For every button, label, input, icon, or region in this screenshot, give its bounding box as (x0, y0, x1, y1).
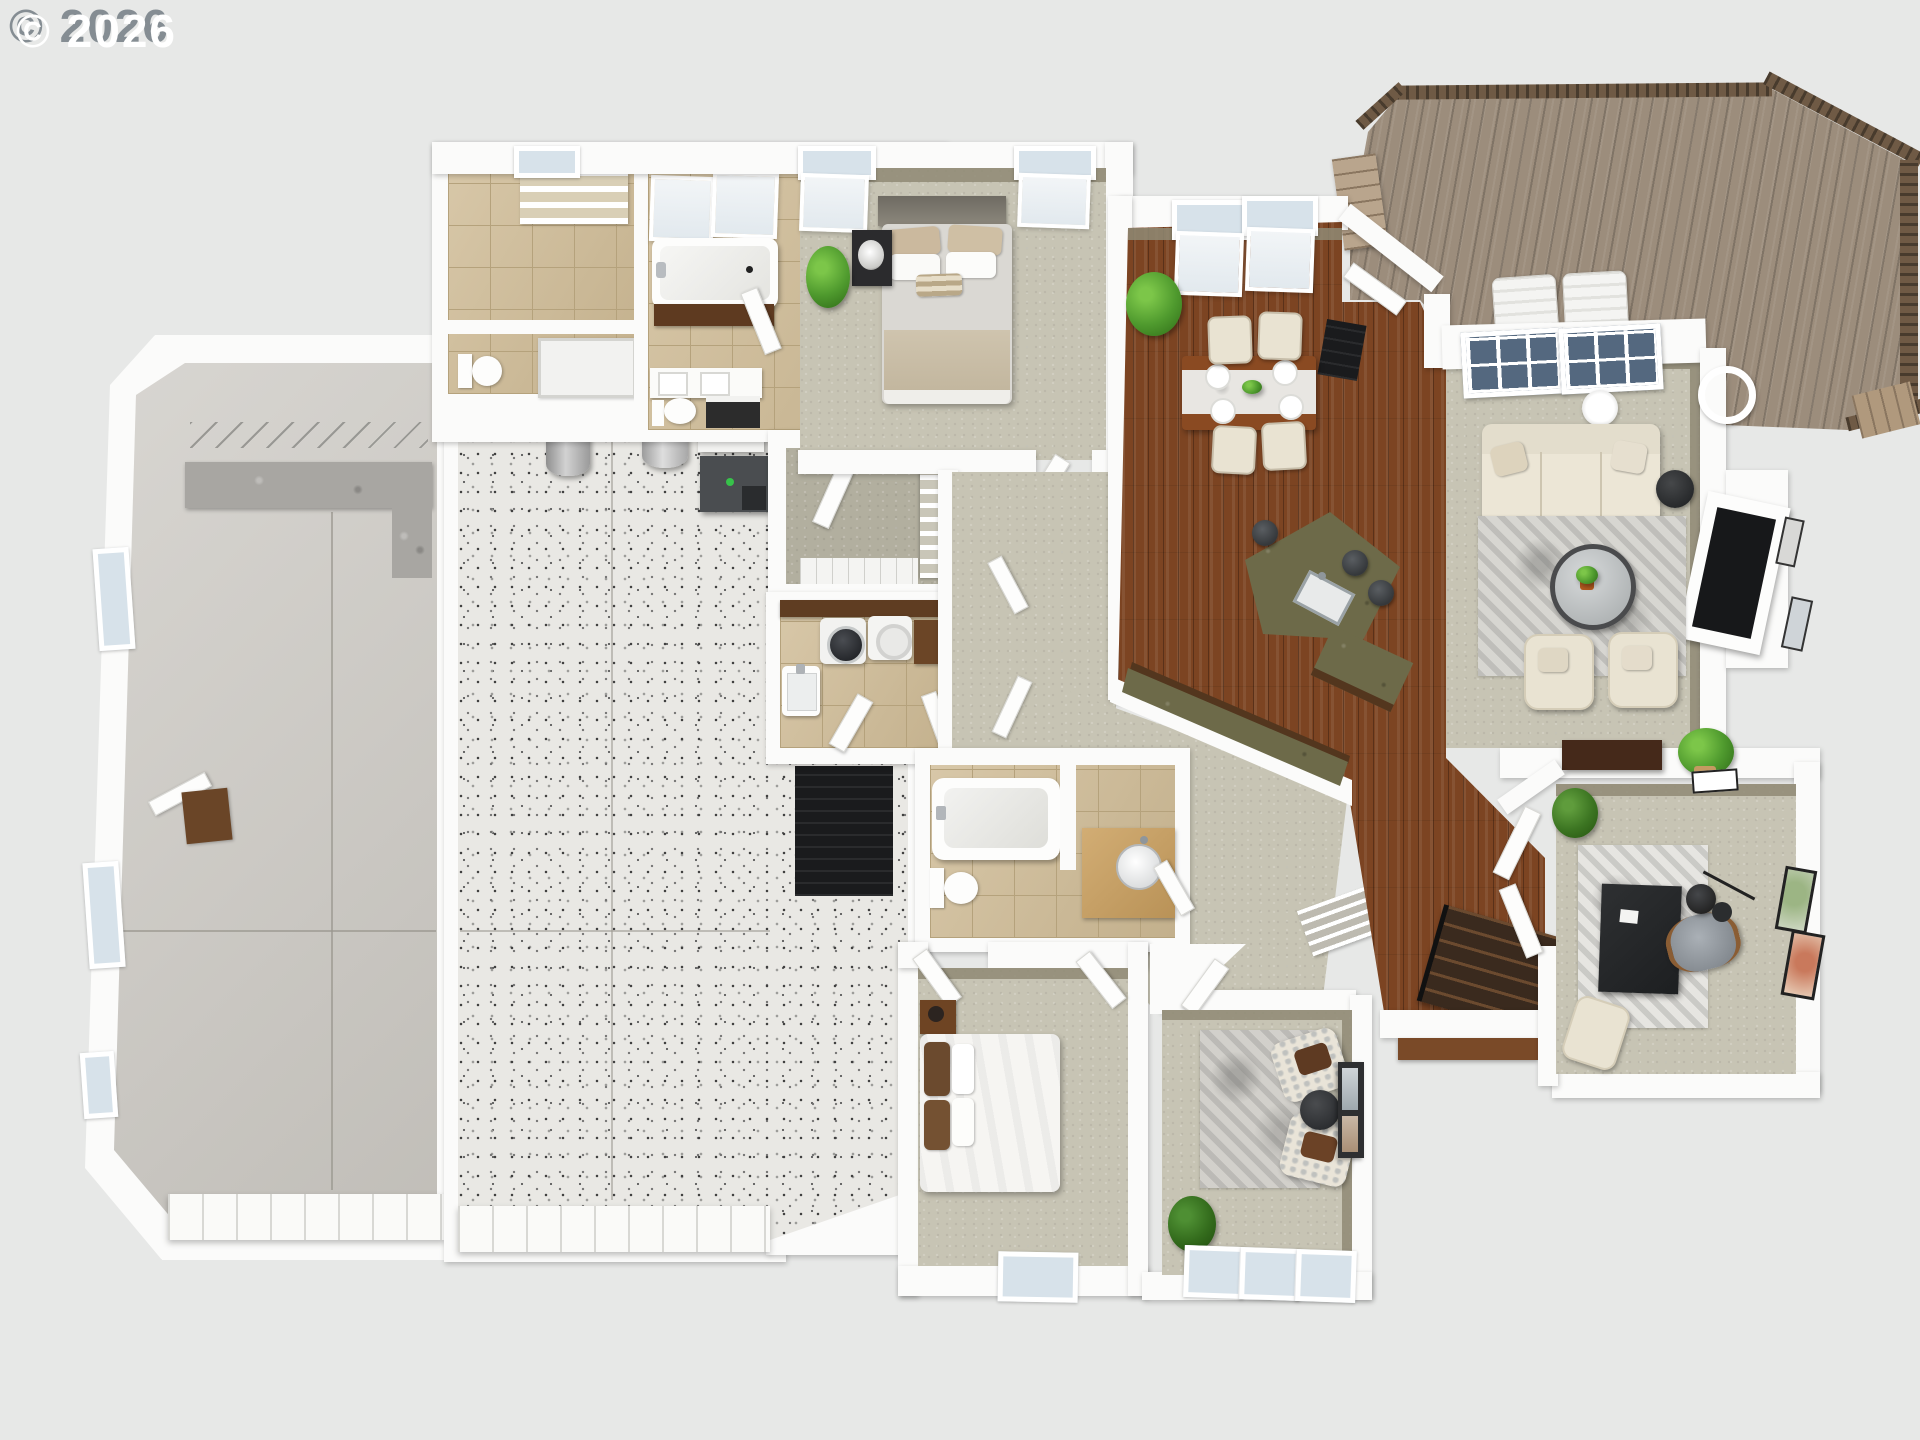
master-table-lamp (858, 240, 884, 270)
floor-plan-render: © 2026 (0, 0, 1920, 1440)
armchair-1-pillow (1538, 648, 1568, 672)
living-picture-window-2 (1558, 323, 1663, 394)
console-table (1562, 740, 1662, 770)
bedroom2-brown-pillow-2 (924, 1100, 950, 1150)
office-bottom-wall (1552, 1072, 1820, 1098)
garage-workbench-return (392, 508, 432, 578)
office-north-art (1691, 768, 1738, 793)
dining-chair-2 (1257, 311, 1303, 361)
desk-paper (1619, 909, 1638, 924)
black-side-table (1656, 470, 1694, 508)
arc-lamp-head-2 (1712, 902, 1732, 922)
laundry-counter (780, 600, 962, 617)
hvac-indicator-light (726, 478, 734, 486)
sofa-pillow-2 (1610, 439, 1649, 474)
place-setting-2 (1272, 360, 1298, 386)
office-fern (1552, 788, 1598, 838)
vanity-sink-1 (658, 372, 688, 396)
garage-doormat (181, 788, 232, 845)
utility-sink-basin (787, 673, 817, 711)
garage-window-2 (82, 861, 125, 969)
workshop-joint-h (460, 930, 770, 932)
garage-door-panel (168, 1194, 445, 1240)
living-picture-window-1 (1460, 327, 1565, 398)
bedroom2-top-wall-mid (988, 942, 1148, 968)
sitting-window-1 (1183, 1245, 1245, 1299)
entry-south-wall (1380, 1010, 1550, 1038)
sitting-leaning-art-image (1342, 1068, 1358, 1110)
master-accent-pillow (916, 273, 963, 297)
workshop-joint-v (611, 418, 613, 1200)
garage-window-3 (80, 1051, 119, 1119)
garage-window-1 (92, 547, 135, 651)
bath-window-pane-2 (711, 171, 779, 239)
master-duvet-throw (884, 330, 1010, 392)
place-setting-4 (1278, 394, 1304, 420)
copyright-watermark: © 2026 (16, 4, 177, 58)
sitting-leaning-art-image-2 (1342, 1116, 1358, 1152)
dining-window-pane-2 (1245, 227, 1315, 293)
hall-toilet-tank (930, 868, 944, 908)
living-armchair-2 (1608, 632, 1678, 708)
garage-workbench (185, 462, 432, 508)
master-window-pane-1 (799, 173, 869, 233)
armchair-2-pillow (1622, 646, 1652, 670)
wc-window-frame (514, 146, 580, 178)
utility-sink-faucet (796, 664, 805, 674)
bar-stool-1 (1252, 520, 1278, 546)
dining-chair-3 (1211, 425, 1257, 475)
bath-window-pane-1 (649, 175, 715, 243)
office-left-wall (1538, 946, 1558, 1086)
hall-bath-divider (1060, 765, 1076, 870)
vanity-stool (706, 396, 760, 428)
hall-bathtub-interior (944, 788, 1048, 848)
sitting-side-table (1300, 1090, 1340, 1130)
workshop-black-pad (795, 766, 893, 896)
master-toilet-tank (652, 400, 664, 426)
shower-pan (538, 338, 636, 398)
master-duvet-foot (884, 390, 1010, 404)
sitting-north-wall-face (1162, 1010, 1352, 1020)
bedroom2-brown-pillow-1 (924, 1042, 950, 1096)
bar-stool-2 (1342, 550, 1368, 576)
garage-floor-joint-v (331, 512, 333, 1190)
sitting-window-3 (1295, 1249, 1357, 1303)
wc-toilet-bowl (472, 356, 502, 386)
bedroom2-lamp (928, 1006, 944, 1022)
hall-toilet-bowl (944, 872, 978, 904)
island-faucet (1318, 572, 1326, 580)
bedroom2-left-wall (898, 942, 918, 1296)
master-toilet-bowl (664, 398, 696, 424)
deck-railing-right (1900, 160, 1918, 406)
pendant-ring-lamp (1698, 366, 1756, 424)
master-headboard (878, 196, 1006, 226)
sitting-window-2 (1239, 1247, 1301, 1301)
pendant-disc-lamp (1582, 390, 1618, 426)
bedroom2-white-pillow-1 (952, 1044, 974, 1094)
water-closet-divider (448, 320, 636, 334)
place-setting-3 (1210, 398, 1236, 424)
hvac-panel (742, 486, 766, 510)
master-window-pane-2 (1017, 173, 1091, 229)
dryer-door (876, 624, 912, 660)
entry-porch-step (1398, 1038, 1538, 1060)
closet-tiled-strip (800, 558, 918, 584)
dining-window-pane-1 (1174, 231, 1244, 297)
dining-chair-1 (1207, 315, 1253, 365)
sofa-cushion-divider-1 (1540, 452, 1542, 520)
vanity-sink-2 (700, 372, 730, 396)
master-south-wall-west (798, 450, 1036, 474)
dining-chair-4 (1261, 421, 1307, 471)
bar-stool-3 (1368, 580, 1394, 606)
master-plant (806, 246, 850, 308)
sitting-plant (1168, 1196, 1216, 1252)
coffee-table-plant (1576, 566, 1598, 584)
master-south-wall-east (1092, 450, 1108, 474)
tub-faucet (656, 262, 666, 278)
dining-plant (1126, 272, 1182, 336)
sofa-cushion-divider-2 (1600, 452, 1602, 520)
linen-shelves (520, 174, 628, 224)
hall-tub-faucet (936, 806, 946, 820)
office-north-wall-face (1556, 784, 1796, 796)
bedroom2-right-wall (1128, 942, 1148, 1296)
living-armchair-1 (1524, 634, 1594, 710)
hall-bath-faucet (1140, 836, 1148, 844)
garage-floor-joint-h (120, 930, 436, 932)
bedroom2-window (998, 1251, 1079, 1302)
bedroom2-white-pillow-2 (952, 1098, 974, 1146)
dining-centerpiece (1242, 380, 1262, 394)
workshop-garage-door (458, 1206, 770, 1252)
place-setting-1 (1205, 364, 1231, 390)
wc-toilet-tank (458, 354, 472, 388)
garage-wall-hooks (190, 422, 428, 448)
tub-drain (746, 266, 753, 273)
washer-lid (827, 626, 865, 664)
